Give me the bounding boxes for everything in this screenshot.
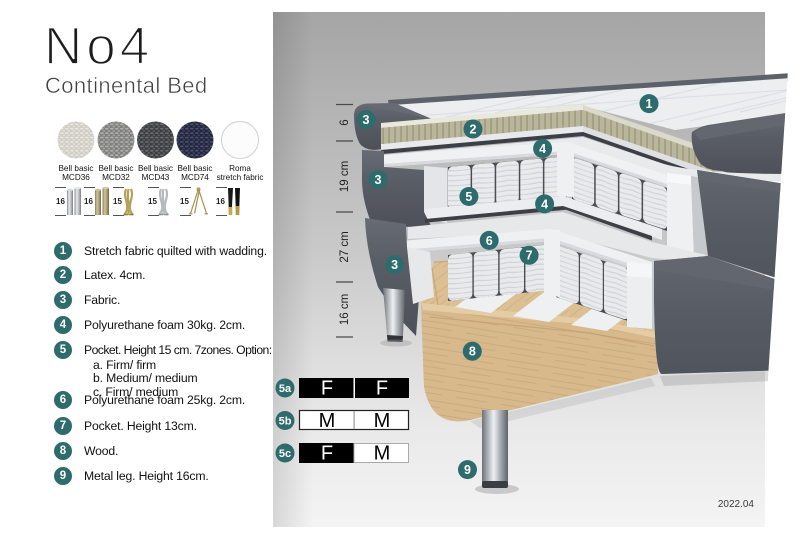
svg-text:7: 7 <box>526 249 533 263</box>
svg-text:F: F <box>376 378 388 400</box>
svg-text:M: M <box>374 410 391 432</box>
svg-text:9: 9 <box>464 463 471 477</box>
svg-text:4: 4 <box>539 142 546 156</box>
svg-text:6: 6 <box>339 119 351 125</box>
svg-text:5c: 5c <box>279 448 291 460</box>
svg-text:F: F <box>321 378 333 400</box>
svg-text:27 cm: 27 cm <box>339 231 351 262</box>
svg-text:16 cm: 16 cm <box>339 294 351 325</box>
svg-text:2: 2 <box>470 122 477 136</box>
svg-text:2022.04: 2022.04 <box>718 499 755 510</box>
svg-text:5a: 5a <box>279 383 292 395</box>
svg-text:F: F <box>321 443 333 465</box>
svg-text:M: M <box>374 443 391 465</box>
svg-text:4: 4 <box>541 197 548 211</box>
svg-text:M: M <box>319 410 336 432</box>
svg-text:1: 1 <box>646 97 653 111</box>
svg-text:19 cm: 19 cm <box>339 161 351 192</box>
svg-text:5: 5 <box>465 190 472 204</box>
svg-text:3: 3 <box>375 173 382 187</box>
svg-text:3: 3 <box>391 258 398 272</box>
svg-text:3: 3 <box>363 113 370 127</box>
svg-text:8: 8 <box>469 345 476 359</box>
svg-text:6: 6 <box>486 234 493 248</box>
svg-text:5b: 5b <box>279 416 292 428</box>
